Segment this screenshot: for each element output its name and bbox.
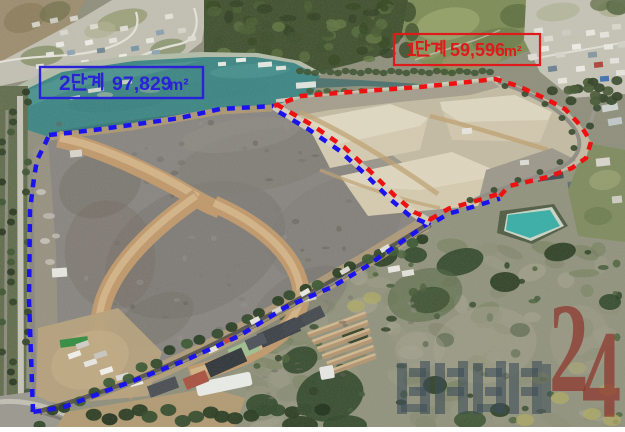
svg-text:97,829: 97,829 [112,73,172,95]
svg-text:59,596: 59,596 [450,40,505,60]
svg-text:m²: m² [504,44,522,60]
svg-text:1: 1 [406,40,417,61]
svg-text:m²: m² [169,77,189,94]
svg-text:4: 4 [582,305,621,427]
svg-text:2: 2 [59,72,71,95]
